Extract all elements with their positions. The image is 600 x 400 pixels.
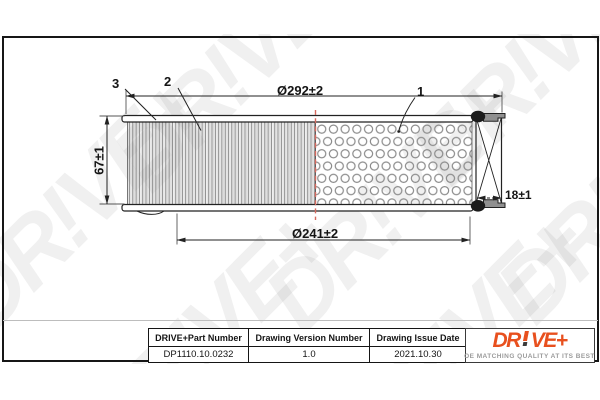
bottom-seal-grommet [471, 200, 485, 212]
exclamation-glyph-icon [522, 330, 529, 346]
brand-tagline: OE MATCHING QUALITY AT ITS BEST [464, 353, 595, 360]
callout-2: 2 [164, 75, 171, 88]
dim-end-depth-label: 18±1 [505, 189, 532, 201]
dim-outer-diameter-label: Ø292±2 [277, 84, 323, 97]
issue-date-value: 2021.10.30 [369, 347, 466, 362]
air-filter-drawing-page: DR!VE+ DR!VE+ DR!VE+ DR!VE+ DR!VE+ DR!VE… [0, 0, 600, 400]
top-seal-grommet [471, 111, 485, 123]
pleated-media-section [128, 122, 316, 205]
callout-1: 1 [417, 85, 424, 98]
issue-date-header: Drawing Issue Date [369, 329, 466, 347]
logo-text-right: VE+ [531, 330, 567, 351]
title-block-separator [3, 320, 598, 321]
top-end-cap [122, 116, 473, 123]
brand-logo: DR VE+ [492, 330, 566, 351]
filter-body [122, 116, 473, 215]
brand-logo-box: DR VE+ OE MATCHING QUALITY AT ITS BEST [465, 328, 595, 363]
info-table: DRIVE+Part Number Drawing Version Number… [148, 328, 467, 363]
dim-media-diameter-label: Ø241±2 [292, 227, 338, 240]
perforated-screen-section [316, 122, 473, 205]
part-number-header: DRIVE+Part Number [149, 329, 248, 347]
version-value: 1.0 [248, 347, 369, 362]
bottom-end-cap [122, 205, 473, 212]
version-header: Drawing Version Number [248, 329, 369, 347]
part-number-value: DP1110.10.0232 [149, 347, 248, 362]
callout-3: 3 [112, 77, 119, 90]
logo-text-left: DR [492, 330, 519, 351]
dim-height-label: 67±1 [93, 138, 106, 184]
cross-brace-lines [476, 117, 502, 204]
mounting-end [471, 111, 505, 212]
